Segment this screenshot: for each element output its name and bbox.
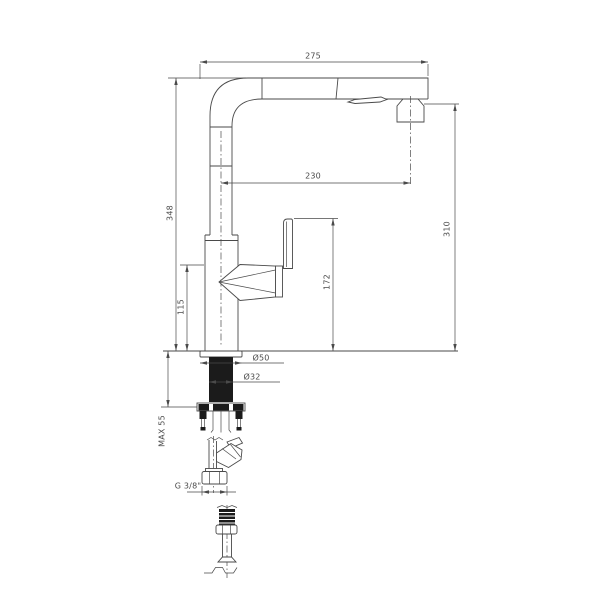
dim-label-115: 115 — [177, 299, 186, 315]
dim-label-230: 230 — [305, 172, 321, 181]
threaded-shank — [209, 357, 233, 402]
dim-label-275: 275 — [305, 52, 321, 61]
dim-label-348: 348 — [166, 205, 175, 221]
lever-handle — [219, 219, 293, 301]
hose-elbow-fitting — [202, 436, 243, 493]
mounting-hardware — [197, 403, 245, 433]
dim-label-g38: G 3/8" — [175, 482, 202, 491]
dim-label-172: 172 — [323, 274, 332, 290]
dim-label-max55: MAX 55 — [158, 415, 167, 447]
technical-drawing: 275 230 348 310 172 115 MAX 55 Ø50 Ø32 G… — [0, 0, 600, 600]
base-plate — [163, 351, 458, 357]
spray-release-button — [348, 97, 387, 104]
faucet-outline — [210, 78, 428, 235]
dimension-lines — [161, 60, 459, 495]
dim-label-d50: Ø50 — [252, 354, 269, 363]
flexible-hose — [204, 505, 237, 578]
dim-label-d32: Ø32 — [243, 373, 260, 382]
dim-label-310: 310 — [443, 221, 452, 237]
drawing-linework — [0, 0, 600, 600]
